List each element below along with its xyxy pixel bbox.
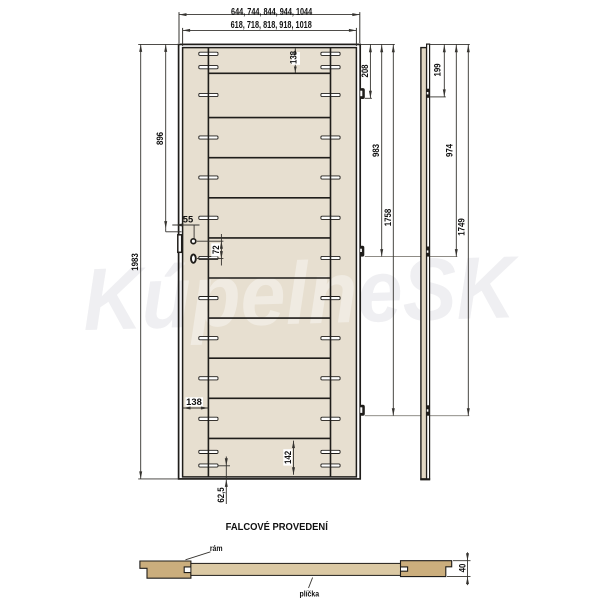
svg-text:62,5: 62,5 [215,487,226,502]
svg-text:983: 983 [370,144,381,157]
svg-text:72: 72 [210,245,221,254]
svg-text:208: 208 [359,64,370,77]
svg-text:plíčka: plíčka [299,589,319,599]
svg-text:1983: 1983 [129,253,140,271]
svg-text:1758: 1758 [382,209,393,227]
svg-text:1749: 1749 [456,218,467,236]
svg-text:644, 744, 844, 944, 1044: 644, 744, 844, 944, 1044 [231,6,312,17]
svg-text:142: 142 [282,451,293,464]
svg-text:40: 40 [457,564,468,573]
svg-text:55: 55 [183,214,193,225]
svg-text:rám: rám [210,543,223,553]
svg-text:199: 199 [432,63,443,76]
svg-text:FALCOVÉ PROVEDENÍ: FALCOVÉ PROVEDENÍ [226,522,328,533]
svg-text:138: 138 [186,396,202,407]
svg-text:974: 974 [444,144,455,157]
svg-text:618, 718, 818, 918, 1018: 618, 718, 818, 918, 1018 [231,19,312,30]
svg-text:896: 896 [154,132,165,145]
svg-text:138: 138 [288,51,299,64]
